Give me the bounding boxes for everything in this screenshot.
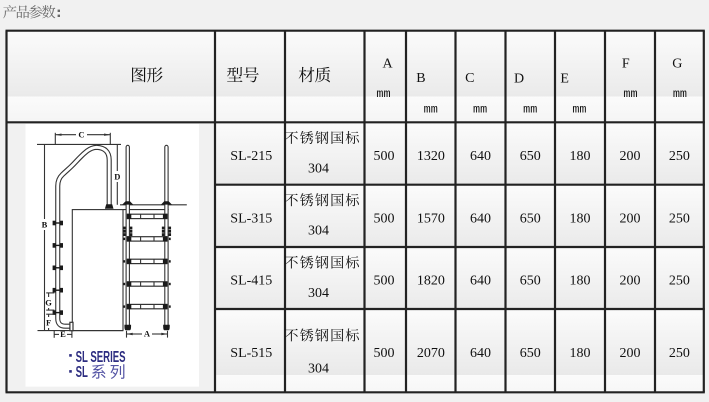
svg-text:640: 640 (470, 346, 491, 361)
svg-text:mm: mm (572, 103, 586, 117)
svg-text:SL-415: SL-415 (230, 274, 272, 289)
svg-text:C: C (465, 71, 474, 86)
svg-text:180: 180 (570, 211, 591, 226)
svg-text:200: 200 (620, 149, 641, 164)
svg-text:500: 500 (374, 346, 395, 361)
svg-text:304: 304 (308, 224, 329, 239)
svg-text:D: D (514, 71, 524, 86)
svg-text:SL: SL (76, 363, 88, 381)
svg-text:650: 650 (520, 346, 541, 361)
svg-text:SL-315: SL-315 (230, 211, 272, 226)
svg-text:200: 200 (620, 211, 641, 226)
svg-text:250: 250 (669, 346, 690, 361)
svg-text:mm: mm (523, 103, 537, 117)
svg-text:D: D (114, 171, 120, 181)
svg-text:650: 650 (520, 149, 541, 164)
svg-text:SL-215: SL-215 (230, 149, 272, 164)
svg-text:304: 304 (308, 361, 329, 376)
svg-text:B: B (416, 71, 425, 86)
svg-text:F: F (46, 318, 51, 328)
svg-text:E: E (560, 71, 569, 86)
svg-text:200: 200 (620, 346, 641, 361)
svg-text:500: 500 (374, 149, 395, 164)
svg-text:1320: 1320 (417, 149, 445, 164)
svg-text:500: 500 (374, 211, 395, 226)
svg-text:304: 304 (308, 161, 329, 176)
svg-text:mm: mm (673, 87, 687, 101)
svg-text:180: 180 (570, 346, 591, 361)
svg-text:640: 640 (470, 149, 491, 164)
svg-text:mm: mm (376, 87, 390, 101)
svg-text:250: 250 (669, 274, 690, 289)
svg-text:640: 640 (470, 274, 491, 289)
svg-text:200: 200 (620, 274, 641, 289)
svg-text:1820: 1820 (417, 274, 445, 289)
svg-text:650: 650 (520, 211, 541, 226)
svg-text:304: 304 (308, 286, 329, 301)
svg-text:2070: 2070 (417, 346, 445, 361)
svg-text:1570: 1570 (417, 211, 445, 226)
svg-text:mm: mm (424, 103, 438, 117)
svg-text:180: 180 (570, 274, 591, 289)
svg-text:180: 180 (570, 149, 591, 164)
svg-text:G: G (45, 297, 52, 307)
svg-text:A: A (144, 329, 151, 339)
svg-text:250: 250 (669, 149, 690, 164)
svg-text:mm: mm (473, 103, 487, 117)
svg-text:F: F (622, 57, 630, 72)
svg-text:SL-515: SL-515 (230, 346, 272, 361)
svg-text:250: 250 (669, 211, 690, 226)
svg-text:mm: mm (623, 87, 637, 101)
svg-text:640: 640 (470, 211, 491, 226)
svg-text:650: 650 (520, 274, 541, 289)
svg-text:500: 500 (374, 274, 395, 289)
svg-text:B: B (42, 220, 48, 230)
svg-text:C: C (78, 130, 84, 140)
svg-text:E: E (60, 329, 66, 339)
svg-text:G: G (672, 57, 682, 72)
svg-text:A: A (383, 57, 394, 72)
